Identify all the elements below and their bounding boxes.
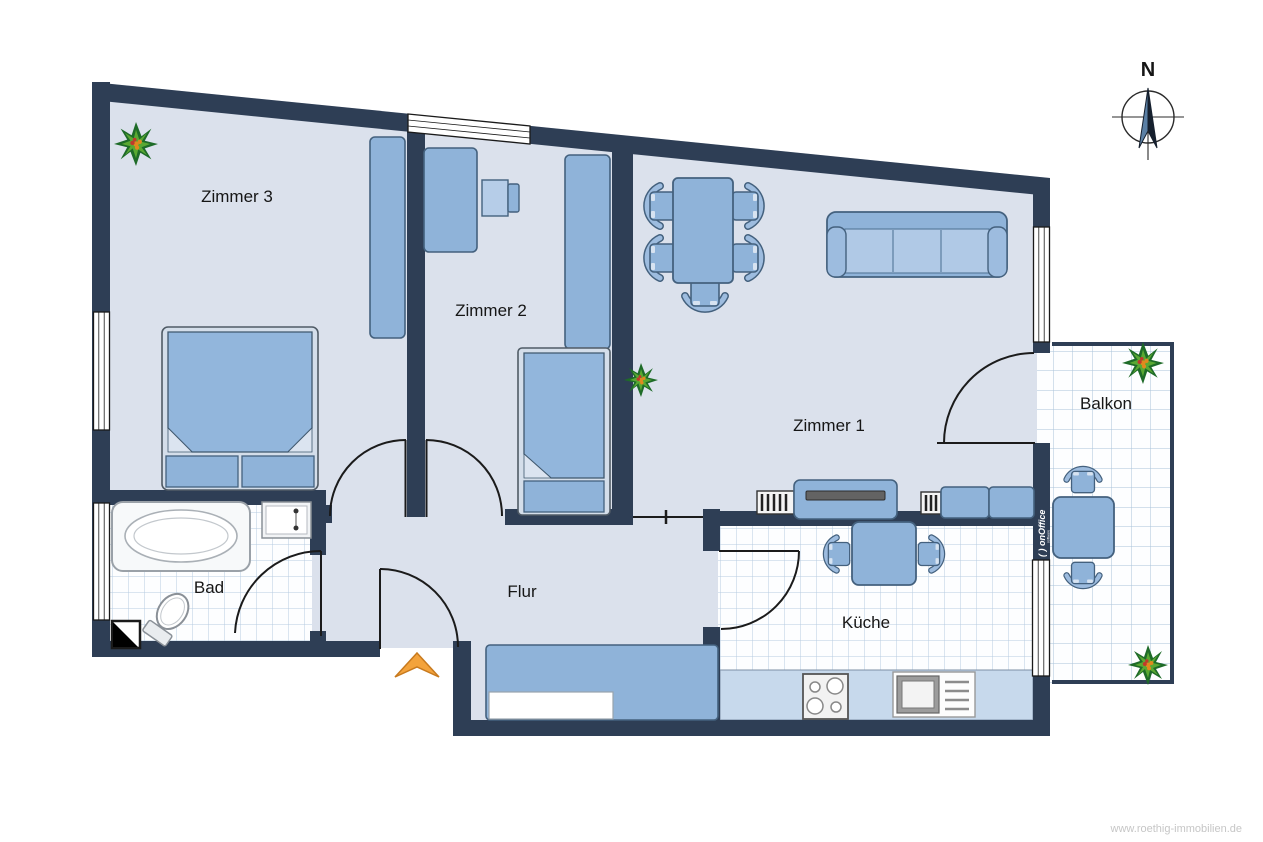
room-label-flur: Flur — [507, 582, 537, 601]
floor-plan: N ( ) onOffice software Zimmer 3 Zimmer … — [0, 0, 1263, 842]
cabinet-1 — [941, 487, 989, 518]
room-label-zimmer2: Zimmer 2 — [455, 301, 527, 320]
entrance-arrow-icon — [395, 653, 439, 677]
svg-text:( ) onOffice: ( ) onOffice — [1037, 510, 1047, 557]
room-label-balkon: Balkon — [1080, 394, 1132, 413]
watermark: www.roethig-immobilien.de — [1110, 823, 1242, 835]
cabinet-2 — [989, 487, 1034, 518]
bathtub — [112, 502, 250, 571]
balcony-table — [1053, 497, 1114, 558]
window-zimmer3 — [94, 312, 110, 430]
room-label-zimmer3: Zimmer 3 — [201, 187, 273, 206]
tv-lowboard — [794, 480, 897, 519]
bed-zimmer3 — [162, 327, 318, 490]
bed-zimmer2 — [518, 348, 610, 515]
floor-plan-drawing: N ( ) onOffice software Zimmer 3 Zimmer … — [0, 0, 1263, 842]
compass-icon: N — [1112, 59, 1184, 160]
window-bad — [94, 503, 110, 620]
wardrobe-zimmer2 — [424, 148, 477, 252]
room-label-kueche: Küche — [842, 613, 890, 632]
plant-balkon-bottom — [1128, 645, 1168, 685]
window-zimmer1 — [1034, 227, 1050, 342]
window-kueche — [1033, 560, 1050, 676]
stove — [803, 674, 848, 719]
dining-table — [673, 178, 733, 283]
kitchen-table — [852, 522, 916, 585]
desk-zimmer2 — [482, 180, 519, 216]
svg-text:software: software — [1047, 530, 1051, 543]
wardrobe-zimmer3 — [370, 137, 405, 338]
room-label-zimmer1: Zimmer 1 — [793, 416, 865, 435]
sofa — [827, 212, 1007, 277]
tv — [806, 491, 885, 500]
room-label-bad: Bad — [194, 578, 224, 597]
hall-sideboard — [486, 645, 718, 720]
shaft-symbol — [112, 621, 140, 648]
bathroom-sink — [262, 502, 311, 538]
radiator-2 — [921, 492, 941, 514]
radiator-1 — [757, 491, 794, 514]
kitchen-sink — [893, 672, 975, 717]
hall-rug — [489, 692, 613, 719]
balcony-doorway-tiles — [1037, 353, 1050, 443]
compass-north-label: N — [1141, 59, 1155, 81]
wardrobe-tall-zimmer2 — [565, 155, 610, 349]
kitchen-counter — [720, 670, 1033, 720]
